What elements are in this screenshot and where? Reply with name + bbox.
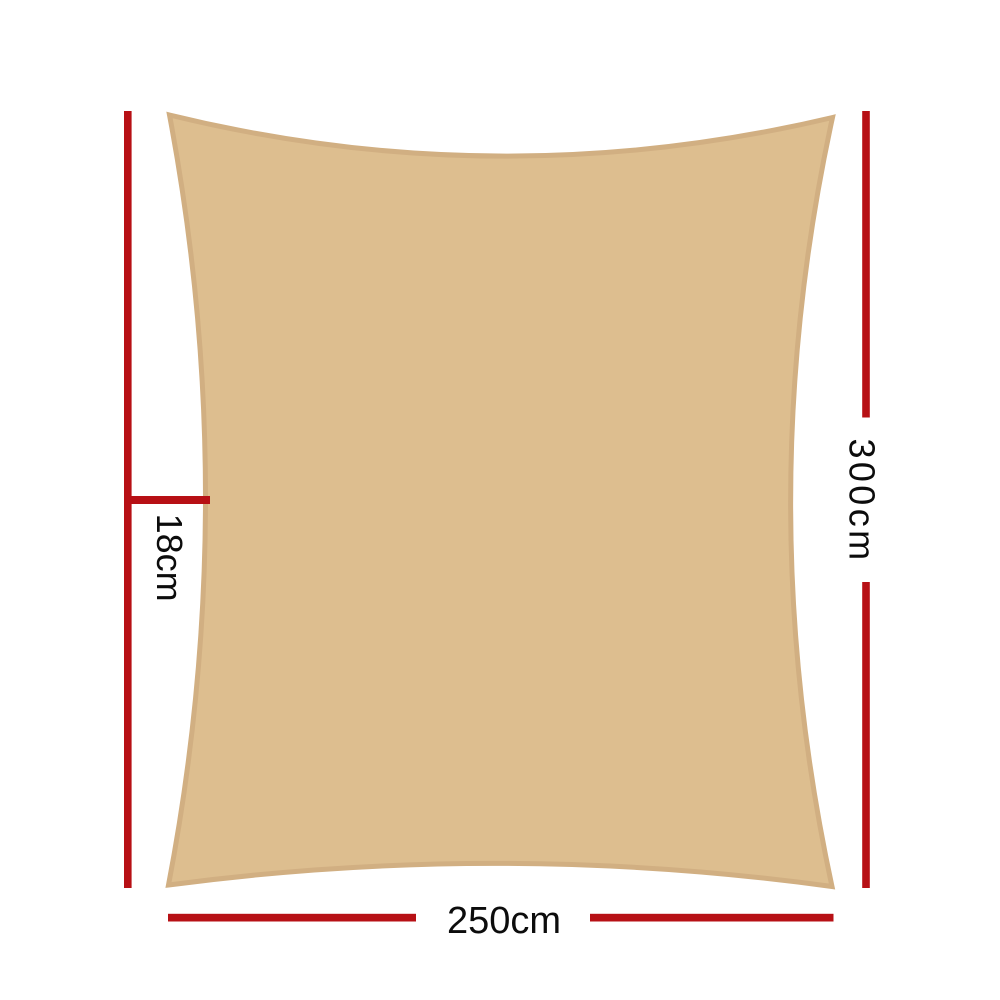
- svg-text:300cm: 300cm: [842, 438, 883, 563]
- svg-text:18cm: 18cm: [149, 514, 190, 602]
- svg-text:250cm: 250cm: [447, 900, 561, 942]
